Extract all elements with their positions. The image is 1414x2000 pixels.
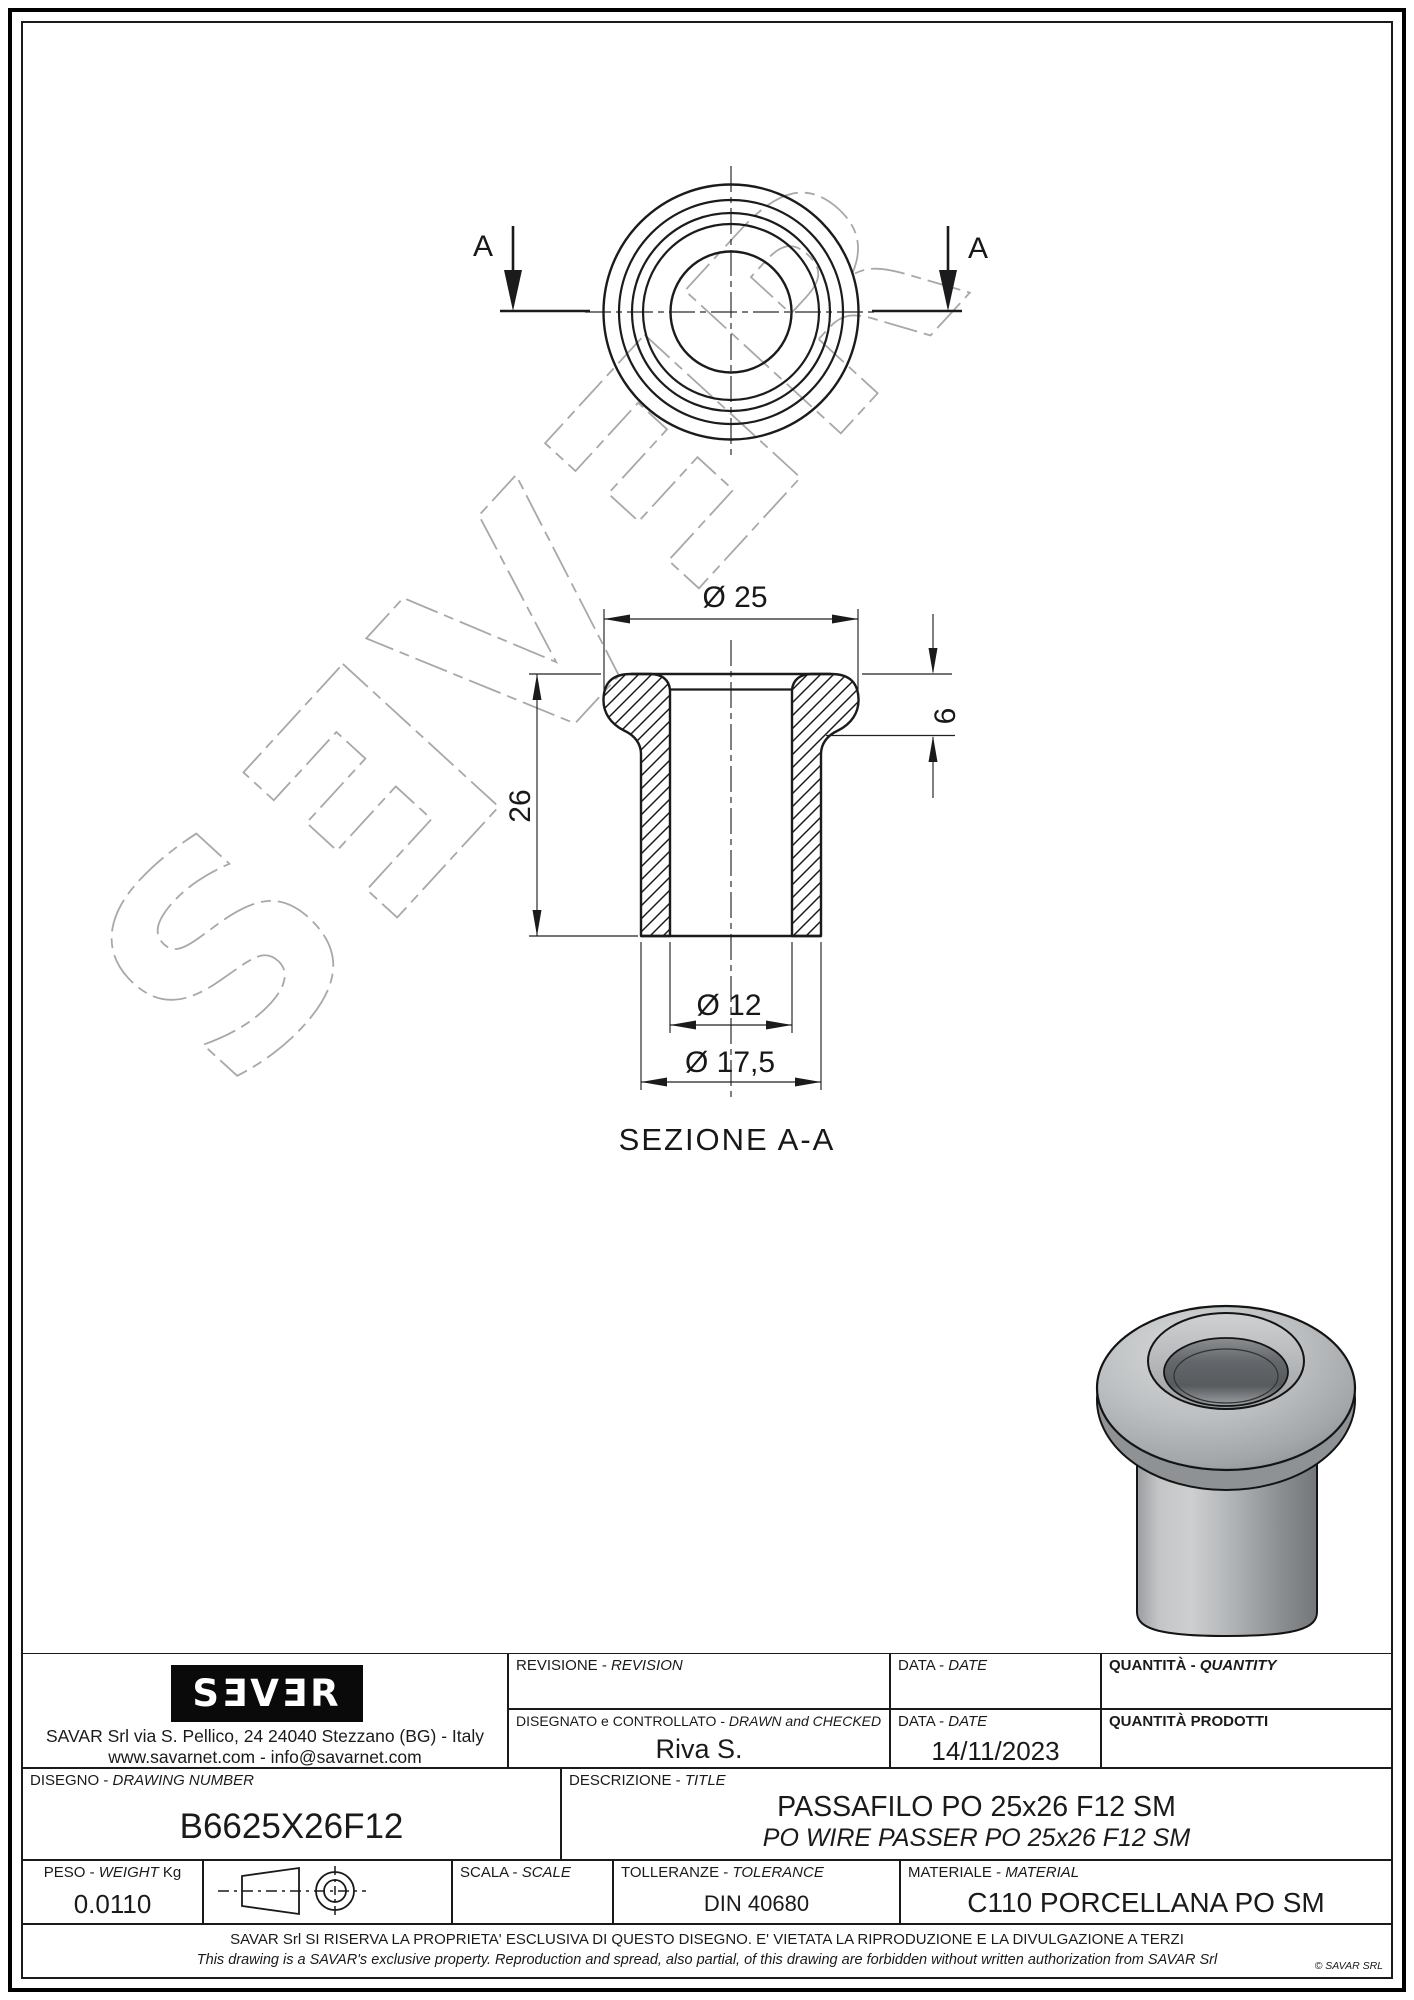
outer-border-frame xyxy=(8,8,1406,1992)
drawing-sheet: SƎVƎR A A xyxy=(0,0,1414,2000)
